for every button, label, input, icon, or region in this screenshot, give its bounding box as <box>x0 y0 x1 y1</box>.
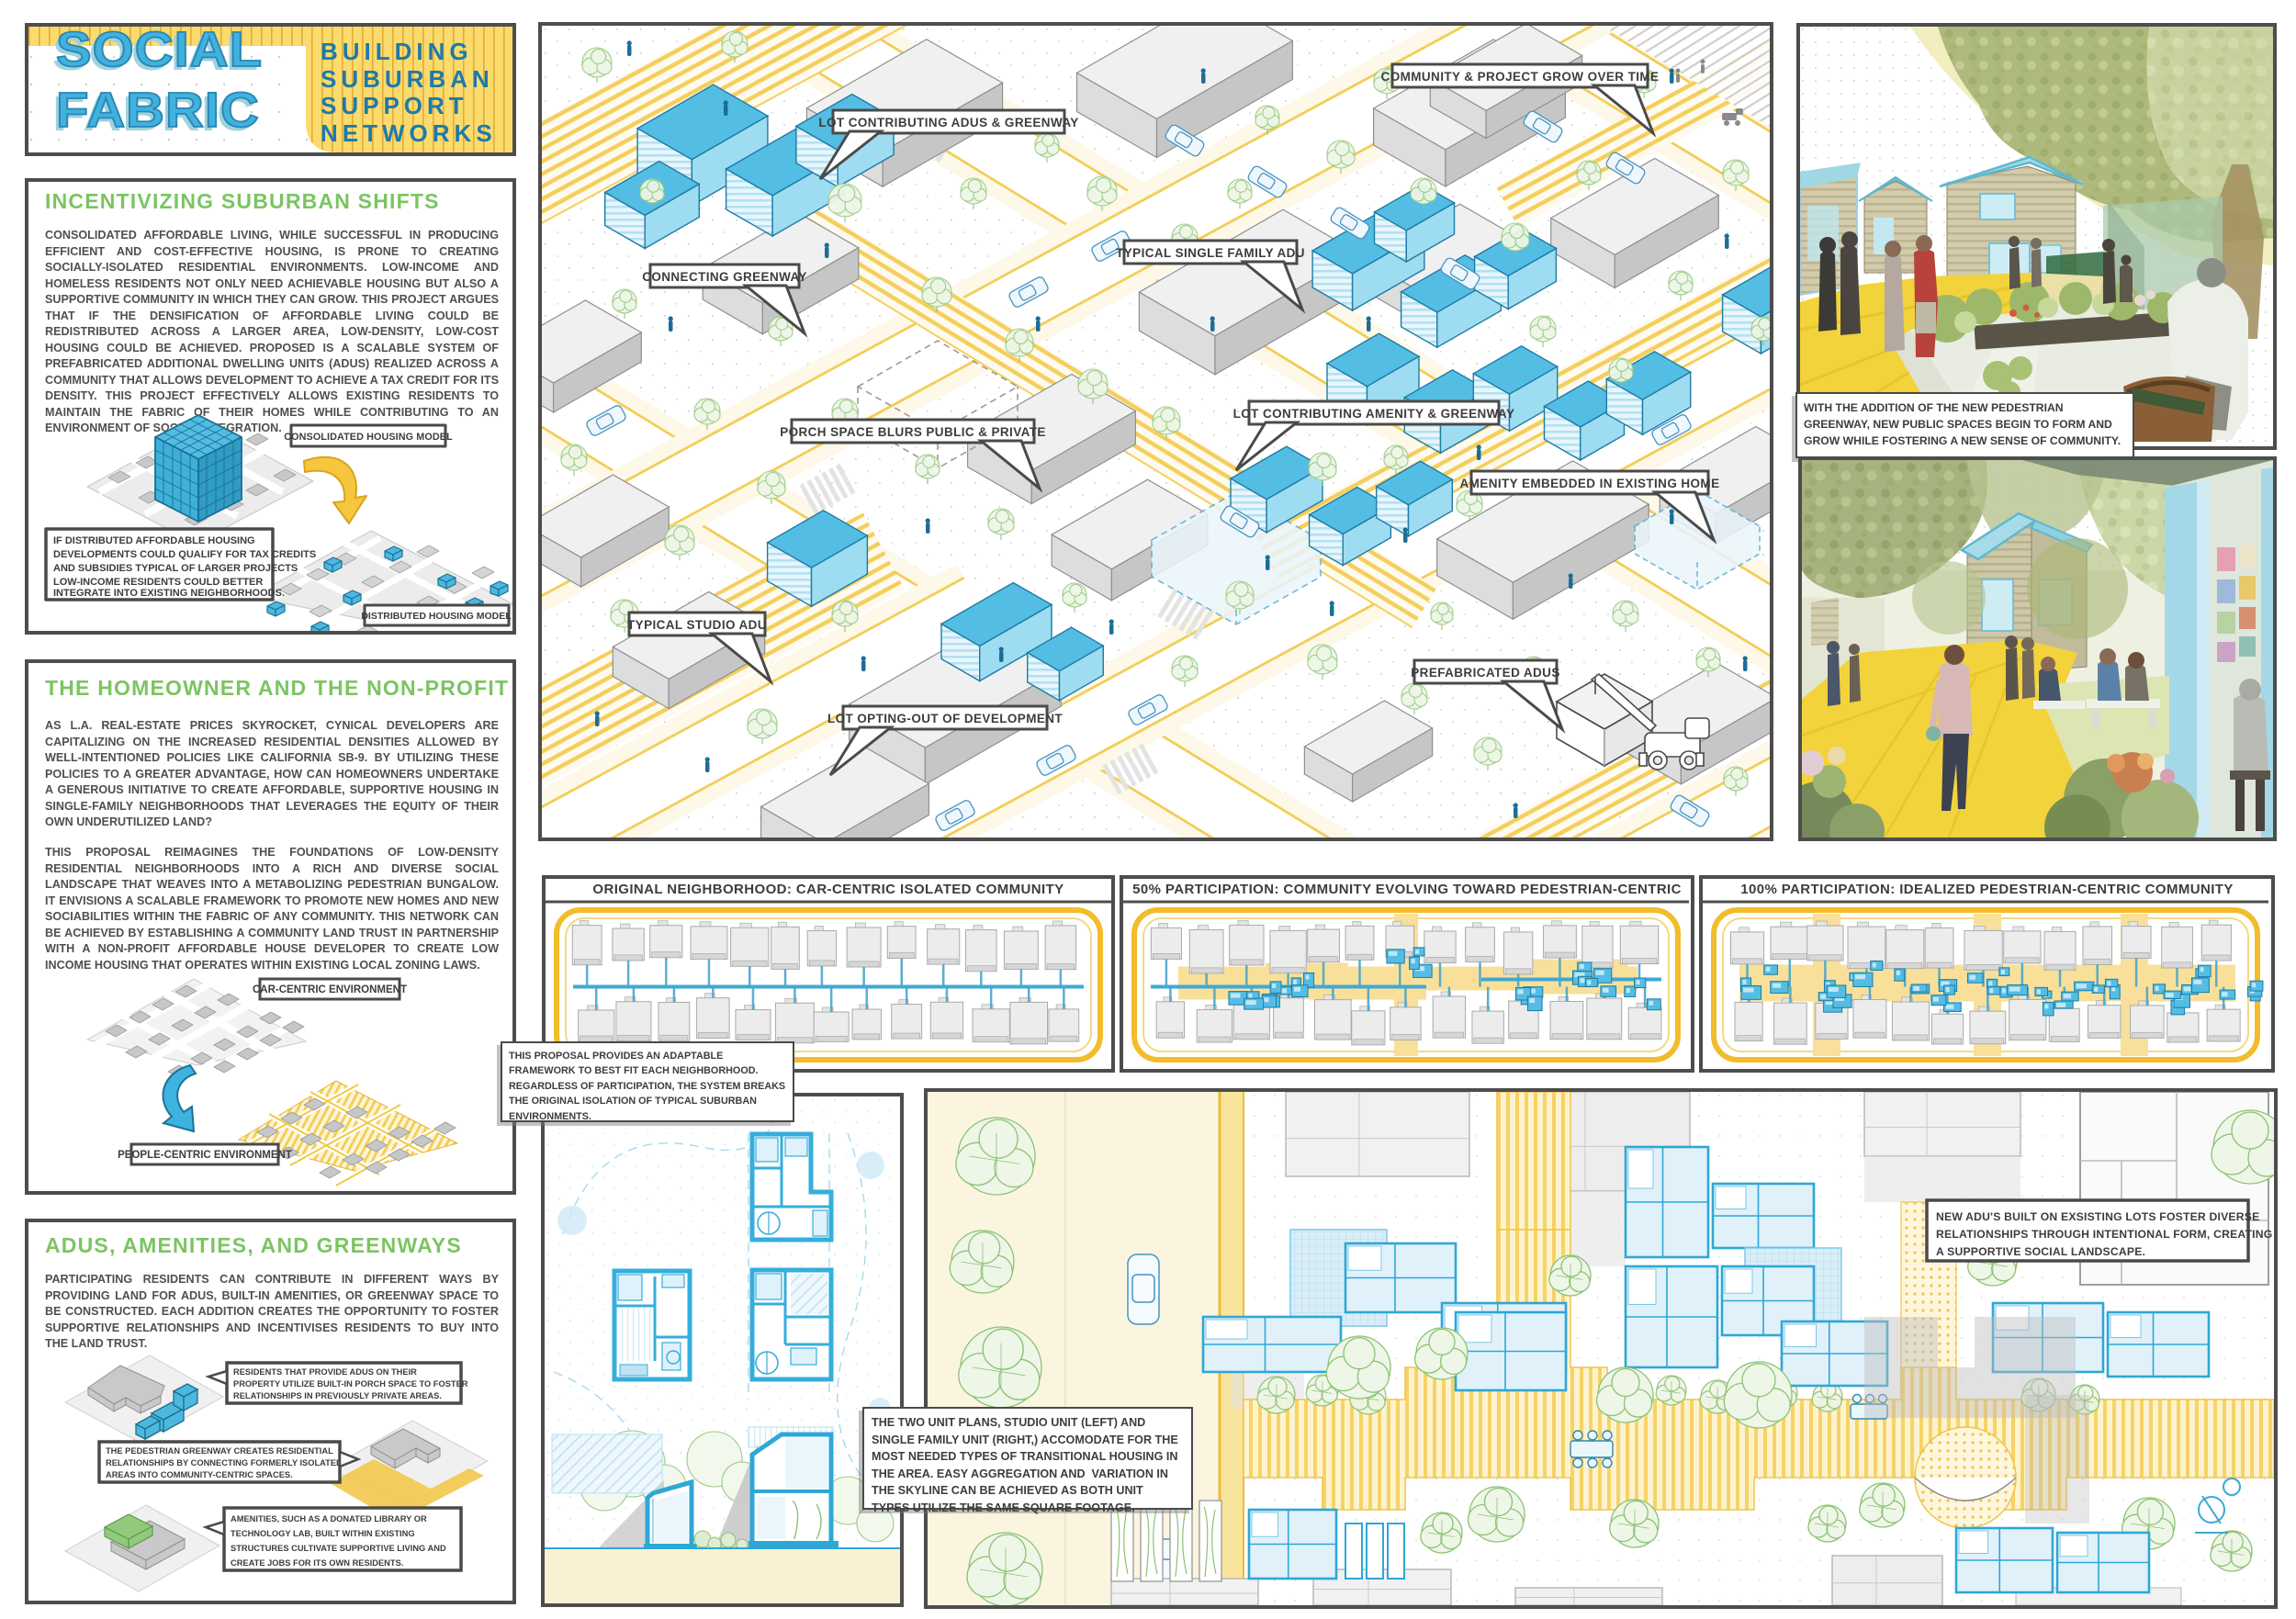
svg-text:NEW ADU'S BUILT ON EXSISTING L: NEW ADU'S BUILT ON EXSISTING LOTS FOSTER… <box>1936 1210 2259 1223</box>
svg-text:COMMUNITY & PROJECT GROW OVER: COMMUNITY & PROJECT GROW OVER TIME <box>1381 70 1660 84</box>
svg-text:TYPICAL STUDIO ADU: TYPICAL STUDIO ADU <box>627 618 767 632</box>
svg-text:DISTRIBUTED HOUSING MODEL: DISTRIBUTED HOUSING MODEL <box>361 611 512 622</box>
svg-text:RELATIONSHIPS BY CONNECTING FO: RELATIONSHIPS BY CONNECTING FORMERLY ISO… <box>106 1458 343 1467</box>
svg-text:PEOPLE-CENTRIC ENVIRONMENT: PEOPLE-CENTRIC ENVIRONMENT <box>118 1150 292 1161</box>
svg-text:LOT CONTRIBUTING ADUS & GREENW: LOT CONTRIBUTING ADUS & GREENWAY <box>818 116 1078 129</box>
svg-text:INTEGRATE INTO EXISTING NEIGHB: INTEGRATE INTO EXISTING NEIGHBORHOODS. <box>53 588 285 599</box>
svg-text:STRUCTURES CULTIVATE SUPPORTIV: STRUCTURES CULTIVATE SUPPORTIVE LIVING A… <box>231 1544 446 1553</box>
svg-text:LOW-INCOME RESIDENTS COULD BET: LOW-INCOME RESIDENTS COULD BETTER <box>53 577 263 588</box>
svg-text:THE PEDESTRIAN GREENWAY CREATE: THE PEDESTRIAN GREENWAY CREATES RESIDENT… <box>106 1446 333 1456</box>
svg-text:AMENITIES, SUCH AS A DONATED L: AMENITIES, SUCH AS A DONATED LIBRARY OR <box>231 1514 427 1523</box>
svg-text:PREFABRICATED ADUS: PREFABRICATED ADUS <box>1411 666 1559 680</box>
svg-text:A SUPPORTIVE SOCIAL LANDSCAPE.: A SUPPORTIVE SOCIAL LANDSCAPE. <box>1936 1245 2145 1258</box>
svg-text:AMENITY EMBEDDED IN EXISTING H: AMENITY EMBEDDED IN EXISTING HOME <box>1460 477 1720 490</box>
svg-text:PORCH SPACE BLURS PUBLIC & PRI: PORCH SPACE BLURS PUBLIC & PRIVATE <box>780 425 1046 439</box>
svg-text:RELATIONSHIPS IN PREVIOUSLY PR: RELATIONSHIPS IN PREVIOUSLY PRIVATE AREA… <box>233 1391 442 1400</box>
svg-text:DEVELOPMENTS COULD QUALIFY FOR: DEVELOPMENTS COULD QUALIFY FOR TAX CREDI… <box>53 549 316 560</box>
svg-text:LOT CONTRIBUTING AMENITY & GRE: LOT CONTRIBUTING AMENITY & GREENWAY <box>1233 407 1515 421</box>
svg-text:TYPICAL SINGLE FAMILY ADU: TYPICAL SINGLE FAMILY ADU <box>1116 246 1305 260</box>
svg-text:AND SUBSIDIES TYPICAL OF LARGE: AND SUBSIDIES TYPICAL OF LARGER PROJECTS <box>53 563 298 574</box>
svg-text:PROPERTY UTILIZE BUILT-IN PORC: PROPERTY UTILIZE BUILT-IN PORCH SPACE TO… <box>233 1379 468 1389</box>
svg-text:CREATE JOBS FOR ITS OWN RESIDE: CREATE JOBS FOR ITS OWN RESIDENTS. <box>231 1558 403 1568</box>
svg-text:IF DISTRIBUTED AFFORDABLE HOUS: IF DISTRIBUTED AFFORDABLE HOUSING <box>53 535 255 546</box>
svg-text:CONNECTING GREENWAY: CONNECTING GREENWAY <box>642 270 807 284</box>
svg-text:AREAS INTO COMMUNITY-CENTRIC S: AREAS INTO COMMUNITY-CENTRIC SPACES. <box>106 1470 293 1479</box>
svg-text:CAR-CENTRIC ENVIRONMENT: CAR-CENTRIC ENVIRONMENT <box>253 984 407 995</box>
svg-text:RESIDENTS THAT PROVIDE ADUS ON: RESIDENTS THAT PROVIDE ADUS ON THEIR <box>233 1367 417 1377</box>
svg-text:CONSOLIDATED HOUSING MODEL: CONSOLIDATED HOUSING MODEL <box>284 432 453 443</box>
svg-text:RELATIONSHIPS THROUGH INTENTIO: RELATIONSHIPS THROUGH INTENTIONAL FORM, … <box>1936 1228 2272 1241</box>
svg-text:LOT OPTING-OUT OF DEVELOPMENT: LOT OPTING-OUT OF DEVELOPMENT <box>827 712 1063 725</box>
svg-text:TECHNOLOGY LAB, BUILT WITHIN E: TECHNOLOGY LAB, BUILT WITHIN EXISTING <box>231 1529 415 1538</box>
